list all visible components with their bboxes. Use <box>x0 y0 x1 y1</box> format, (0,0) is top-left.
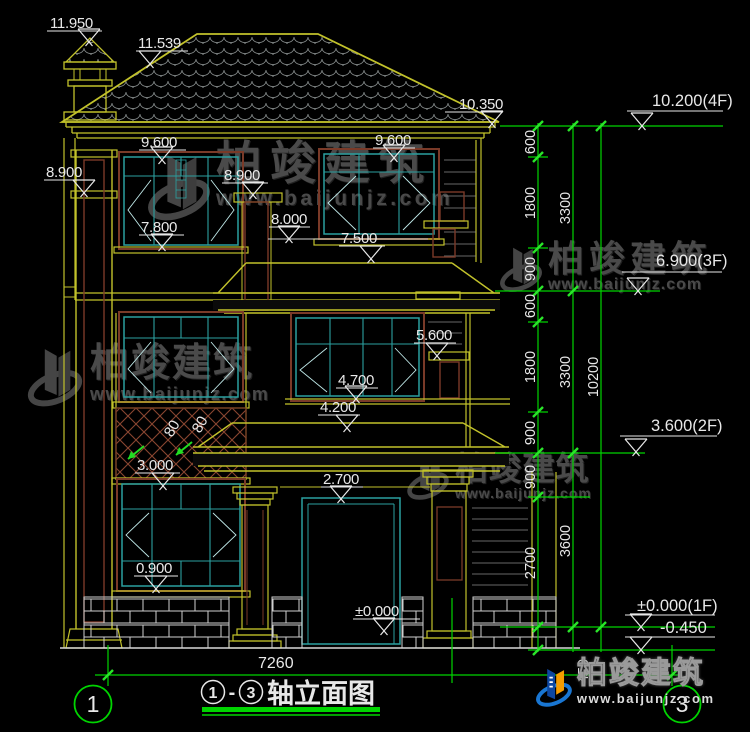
lattice-panel <box>112 408 250 484</box>
brand-url: www.baijunjz.com <box>577 691 715 706</box>
dim-900-b: 900 <box>523 421 539 445</box>
title-separator: - <box>229 682 236 704</box>
left-pilaster <box>64 150 122 648</box>
dim-3600: 3600 <box>558 525 574 557</box>
dim-900-c: 900 <box>523 465 539 489</box>
level-1f: ±0.000(1F) <box>637 597 718 615</box>
ann-ridge: 11.539 <box>138 35 181 52</box>
drawing-title: 轴立面图 <box>267 678 375 709</box>
dim-10200: 10200 <box>586 357 602 397</box>
dim-1800-b: 1800 <box>523 351 539 383</box>
dim-600-a: 600 <box>523 130 539 154</box>
dim-900-a: 900 <box>523 257 539 281</box>
siding-hatch <box>428 160 528 585</box>
cad-elevation-screenshot: 柏竣建筑 www.baijunjz.com 柏竣建筑 www.baijunjz.… <box>0 0 750 732</box>
title-axis-end: 3 <box>247 685 256 702</box>
ann-w3-top-right: 9.600 <box>375 132 411 149</box>
story-level-markers: 10.200(4F) 6.900(3F) 3.600(2F) ±0.000(1F… <box>620 92 733 654</box>
dim-3300-a: 3300 <box>558 192 574 224</box>
brand-name: 柏竣建筑 <box>577 657 705 690</box>
level-basement: -0.450 <box>660 619 707 637</box>
ann-overall-width: 7260 <box>258 655 294 672</box>
column-right <box>423 470 473 648</box>
ann-band-left: 8.900 <box>46 164 82 181</box>
ann-w2-top-right: 5.600 <box>416 327 452 344</box>
roof <box>62 34 499 138</box>
ann-lattice-sill: 3.000 <box>137 457 173 474</box>
level-2f: 3.600(2F) <box>651 417 723 435</box>
elevation-drawing: 600 1800 900 600 1800 900 900 2700 3300 … <box>0 0 750 732</box>
dim-1800-a: 1800 <box>523 187 539 219</box>
ann-canopy-top: 4.200 <box>320 399 356 416</box>
ann-w1-sill: 0.900 <box>136 560 172 577</box>
canopy-upper <box>213 263 500 313</box>
window-2f-right <box>285 313 510 404</box>
brand-logo-icon <box>536 658 572 718</box>
window-1f-left <box>112 479 250 597</box>
window-3f-right <box>314 149 444 245</box>
dim-600-b: 600 <box>523 294 539 318</box>
window-2f-left <box>113 312 249 408</box>
title-axis-start: 1 <box>209 685 218 702</box>
title-block: 1 - 3 轴立面图 <box>202 678 381 715</box>
dim-3300-b: 3300 <box>558 356 574 388</box>
axis-bubble-1: 1 <box>87 691 100 717</box>
level-4f: 10.200(4F) <box>652 92 733 110</box>
level-3f: 6.900(3F) <box>656 252 728 270</box>
brand-logo: 柏竣建筑 www.baijunjz.com <box>536 658 750 718</box>
ann-w3-sill-right: 7.500 <box>341 230 377 247</box>
dim-2700: 2700 <box>523 547 539 579</box>
